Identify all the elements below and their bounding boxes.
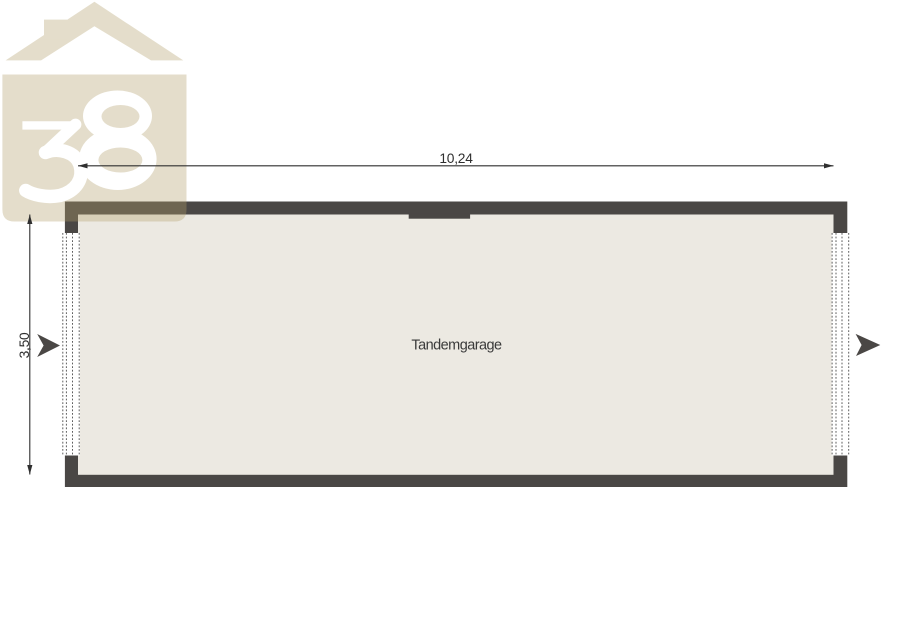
svg-text:10,24: 10,24 (439, 151, 473, 166)
svg-text:3,50: 3,50 (17, 332, 32, 358)
svg-text:Tandemgarage: Tandemgarage (411, 337, 502, 353)
